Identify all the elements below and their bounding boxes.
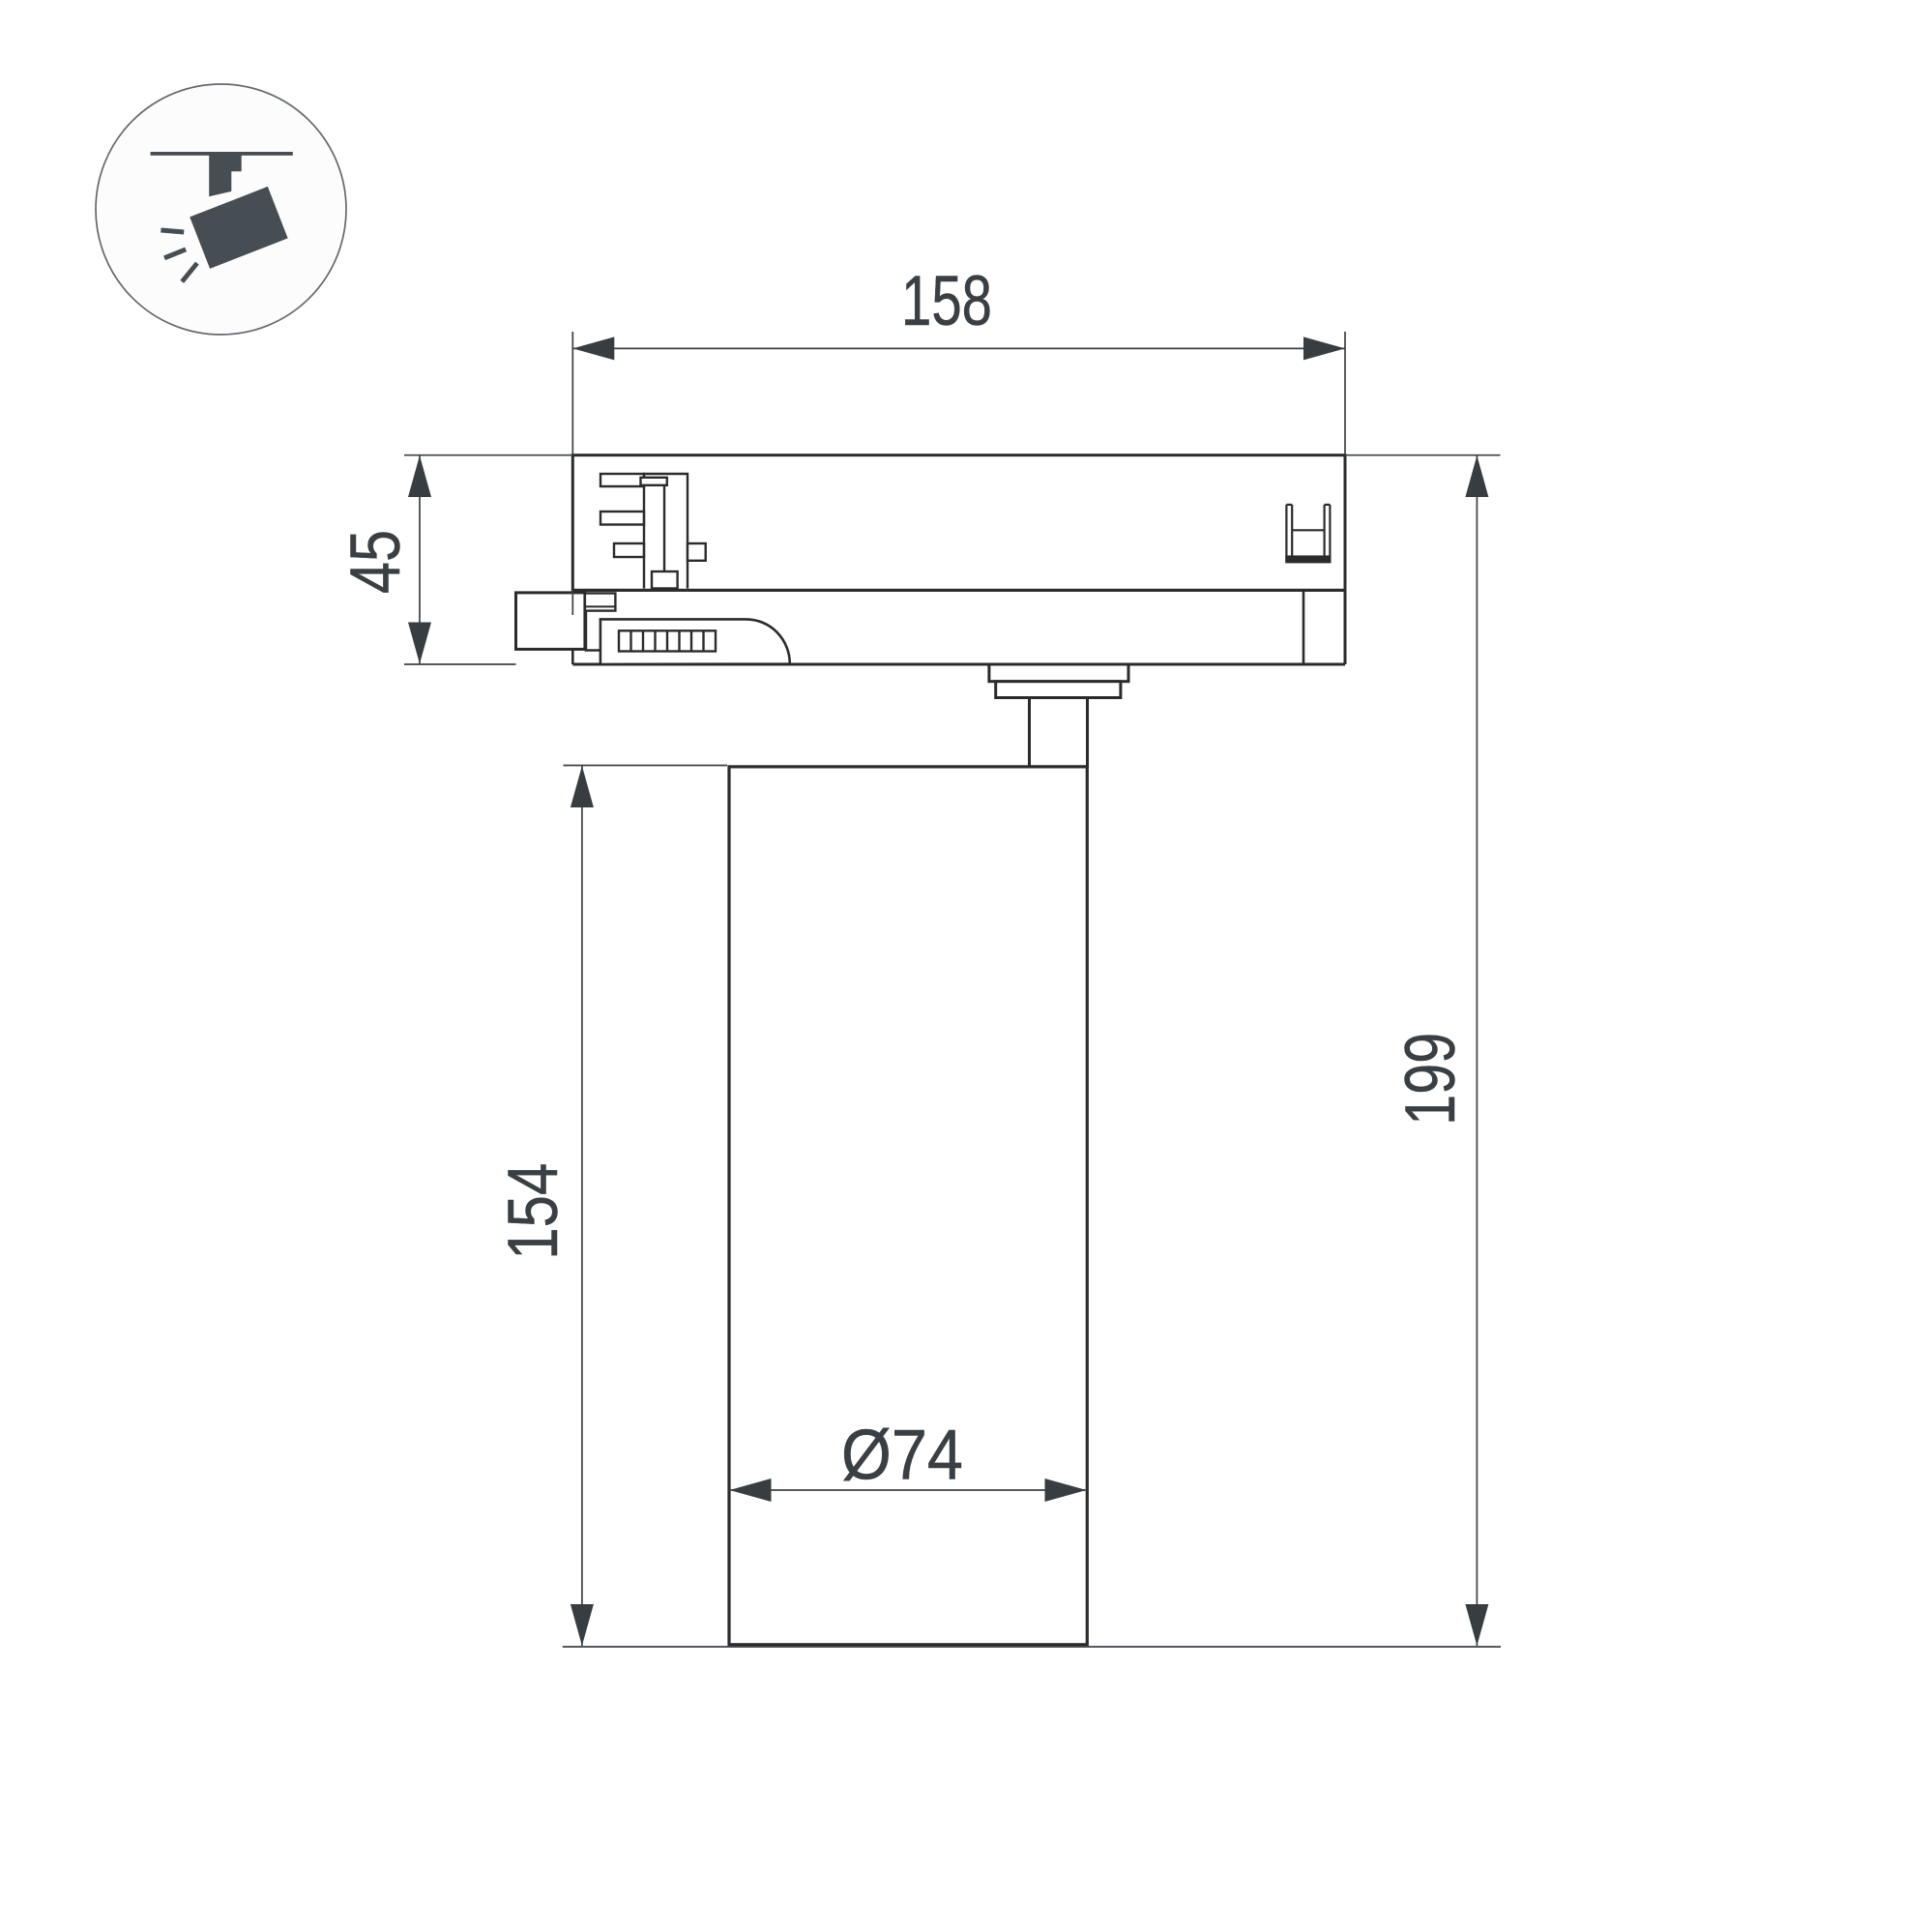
svg-text:Ø74: Ø74 (841, 1417, 963, 1495)
svg-text:199: 199 (1391, 1033, 1470, 1126)
svg-text:45: 45 (337, 530, 415, 594)
svg-text:154: 154 (494, 1163, 572, 1260)
svg-text:158: 158 (901, 262, 992, 340)
